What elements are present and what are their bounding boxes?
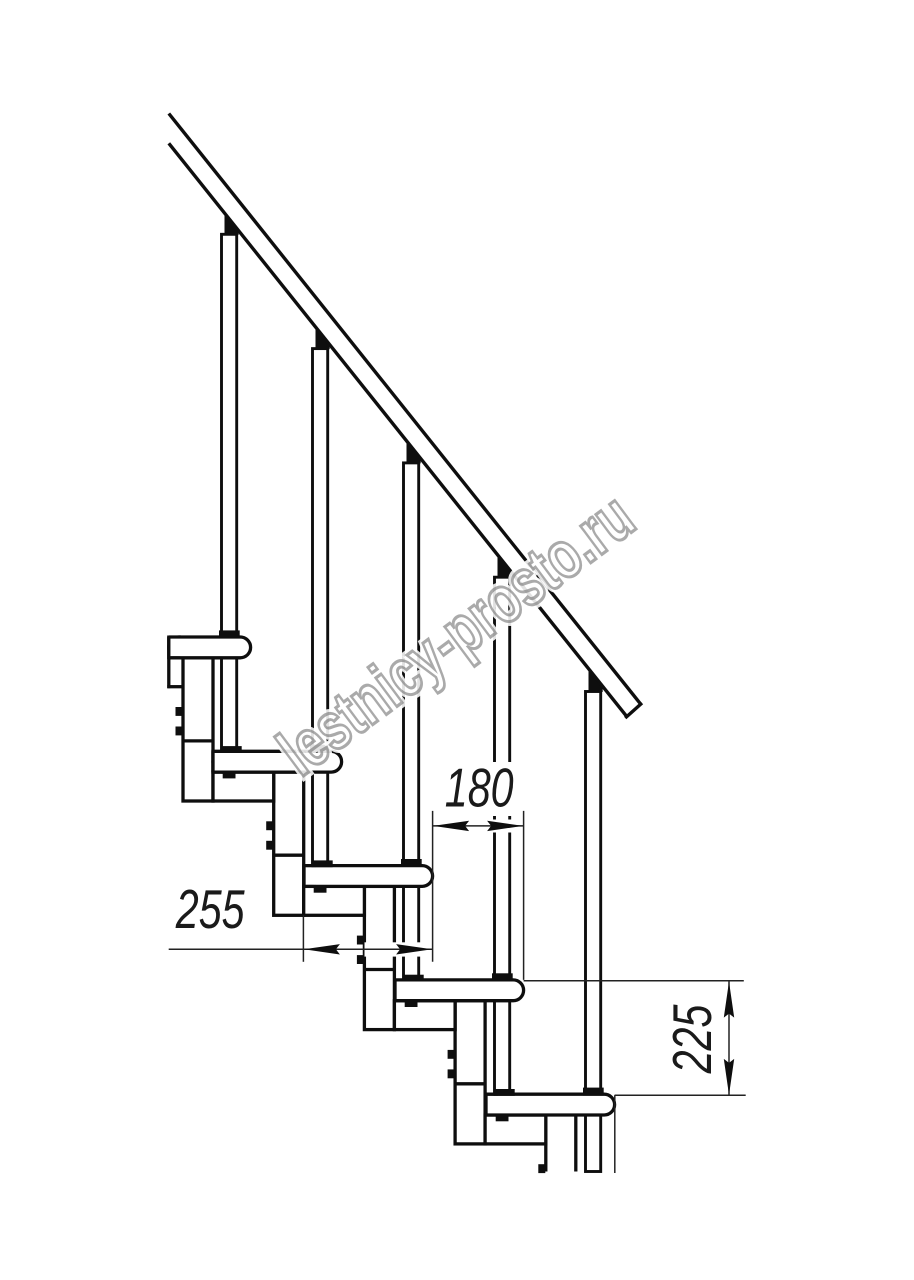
- svg-text:180: 180: [445, 758, 514, 819]
- svg-text:255: 255: [175, 879, 245, 940]
- svg-text:225: 225: [662, 1004, 723, 1074]
